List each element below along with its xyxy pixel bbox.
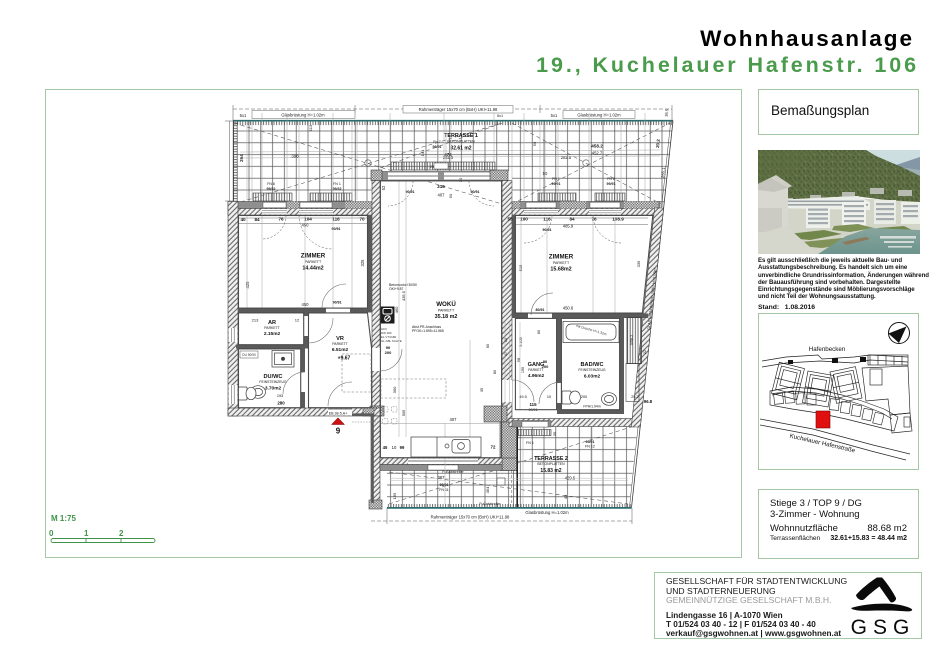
svg-text:100: 100 <box>520 217 528 222</box>
svg-text:70: 70 <box>359 217 365 222</box>
svg-text:9: 9 <box>336 427 341 436</box>
svg-text:PARKETT: PARKETT <box>264 326 279 330</box>
svg-text:25: 25 <box>430 164 435 169</box>
svg-text:10: 10 <box>392 445 397 450</box>
svg-text:99/91: 99/91 <box>607 182 616 186</box>
svg-text:458.2: 458.2 <box>591 144 603 149</box>
svg-text:190: 190 <box>521 367 525 373</box>
svg-text:5x1: 5x1 <box>497 114 503 118</box>
svg-text:3.70m2: 3.70m2 <box>265 386 282 392</box>
svg-text:Rahmenträger 15x70 cm (BxH) UK: Rahmenträger 15x70 cm (BxH) UKI+11.98 <box>431 515 510 520</box>
svg-text:99: 99 <box>400 445 405 450</box>
svg-text:50: 50 <box>543 171 548 176</box>
svg-text:90/91: 90/91 <box>406 190 415 194</box>
svg-text:BET.ONPLATTEN: BET.ONPLATTEN <box>537 462 565 466</box>
svg-text:104: 104 <box>304 217 312 222</box>
svg-text:60: 60 <box>537 330 541 334</box>
svg-text:35.18 m2: 35.18 m2 <box>435 314 458 320</box>
svg-text:50: 50 <box>448 193 453 198</box>
svg-text:200: 200 <box>542 364 549 369</box>
svg-text:452.7: 452.7 <box>592 151 603 156</box>
svg-text:FN 8: FN 8 <box>607 177 615 181</box>
svg-text:113: 113 <box>308 124 313 131</box>
svg-text:10: 10 <box>547 395 551 399</box>
svg-text:43: 43 <box>563 494 568 499</box>
svg-text:49.5: 49.5 <box>519 395 526 399</box>
svg-text:40: 40 <box>240 217 246 222</box>
svg-text:TERRASSE 1: TERRASSE 1 <box>444 133 478 139</box>
svg-text:50: 50 <box>532 141 537 146</box>
svg-text:0/58.2: 0/58.2 <box>630 335 634 346</box>
svg-text:Kuchelauer Hafenstraße: Kuchelauer Hafenstraße <box>789 433 856 455</box>
svg-text:47: 47 <box>504 352 508 356</box>
svg-text:Fußabstreifer: Fußabstreifer <box>442 470 464 474</box>
svg-text:4.96m2: 4.96m2 <box>528 373 545 379</box>
svg-text:99/32: 99/32 <box>333 187 342 191</box>
svg-text:76: 76 <box>278 217 284 222</box>
svg-text:FN 1: FN 1 <box>333 182 341 186</box>
svg-text:Glasbrüstung H=1.02m: Glasbrüstung H=1.02m <box>577 113 621 118</box>
svg-text:90/91: 90/91 <box>333 301 342 305</box>
svg-text:15.83 m2: 15.83 m2 <box>540 468 561 474</box>
svg-text:200: 200 <box>581 395 587 399</box>
svg-text:PFOK=1.895=11.565: PFOK=1.895=11.565 <box>412 329 444 333</box>
svg-text:387: 387 <box>438 475 446 480</box>
svg-text:200: 200 <box>385 350 392 355</box>
svg-text:22: 22 <box>643 350 647 354</box>
svg-text:282.5: 282.5 <box>561 155 572 160</box>
svg-text:6.03m2: 6.03m2 <box>584 374 601 380</box>
svg-text:55: 55 <box>507 217 513 222</box>
svg-text:6.51m2: 6.51m2 <box>332 347 349 353</box>
svg-text:EB 38-5.A+: EB 38-5.A+ <box>329 412 347 416</box>
svg-text:193: 193 <box>277 394 283 398</box>
svg-text:76: 76 <box>591 217 597 222</box>
svg-text:96.8: 96.8 <box>644 399 653 404</box>
svg-text:Hafenbecken: Hafenbecken <box>809 346 846 353</box>
svg-text:99/91: 99/91 <box>586 440 595 444</box>
svg-text:15.68m2: 15.68m2 <box>550 267 571 273</box>
svg-text:325: 325 <box>360 259 365 267</box>
svg-text:144: 144 <box>420 149 425 156</box>
svg-text:FEINSTEINZEUG: FEINSTEINZEUG <box>578 368 605 372</box>
svg-text:5.105: 5.105 <box>519 337 523 347</box>
svg-text:5x1: 5x1 <box>551 113 558 118</box>
svg-text:ZIMMER: ZIMMER <box>301 253 326 260</box>
svg-text:450: 450 <box>302 302 310 307</box>
svg-text:FN 1: FN 1 <box>526 441 534 445</box>
svg-text:PARKETT: PARKETT <box>305 260 322 264</box>
svg-text:425: 425 <box>245 281 250 289</box>
svg-text:165: 165 <box>392 492 397 499</box>
svg-text:45: 45 <box>383 445 388 450</box>
svg-text:OKI+9.87: OKI+9.87 <box>389 287 404 291</box>
svg-text:+9.67: +9.67 <box>338 356 351 362</box>
svg-text:99/91: 99/91 <box>552 182 561 186</box>
svg-text:60: 60 <box>486 344 490 348</box>
svg-text:335: 335 <box>636 260 641 267</box>
svg-text:450.6: 450.6 <box>563 306 574 311</box>
svg-text:FN 1: FN 1 <box>552 177 560 181</box>
svg-text:Fußabstreifer: Fußabstreifer <box>479 502 501 506</box>
svg-text:20.2: 20.2 <box>655 139 661 149</box>
svg-text:485.9: 485.9 <box>563 224 574 229</box>
svg-text:84: 84 <box>569 217 575 222</box>
svg-text:WOKÜ: WOKÜ <box>436 301 456 308</box>
svg-text:Glasbrüstung H=1.02m: Glasbrüstung H=1.02m <box>281 113 325 118</box>
svg-text:99/91: 99/91 <box>440 483 449 487</box>
svg-text:BET.ONPLATTEN: BET.ONPLATTEN <box>447 140 475 144</box>
svg-text:454: 454 <box>485 486 490 493</box>
svg-text:FPH/1.94m: FPH/1.94m <box>583 405 600 409</box>
svg-text:99/91: 99/91 <box>433 145 442 149</box>
svg-text:450: 450 <box>302 223 310 228</box>
svg-text:58: 58 <box>516 357 521 362</box>
svg-text:60: 60 <box>504 338 508 342</box>
svg-text:FEINSTEINZEUG: FEINSTEINZEUG <box>259 380 286 384</box>
svg-text:99/32: 99/32 <box>267 187 276 191</box>
svg-text:116: 116 <box>332 217 340 222</box>
svg-text:80: 80 <box>493 370 497 374</box>
svg-text:FN 8: FN 8 <box>267 182 275 186</box>
svg-text:35: 35 <box>480 388 484 392</box>
svg-text:GL.ABL.SCHTE: GL.ABL.SCHTE <box>381 339 402 343</box>
svg-text:PARKETT: PARKETT <box>438 309 455 313</box>
svg-text:115: 115 <box>529 402 537 407</box>
svg-text:460: 460 <box>394 306 399 313</box>
svg-text:DU 90/90: DU 90/90 <box>242 353 256 357</box>
svg-text:FN 12: FN 12 <box>585 445 595 449</box>
svg-text:Glasbrüstung H=1.02m: Glasbrüstung H=1.02m <box>525 510 569 515</box>
svg-text:12: 12 <box>295 318 300 323</box>
svg-text:300: 300 <box>392 386 397 393</box>
svg-text:80/91: 80/91 <box>536 308 545 312</box>
svg-text:ZIMMER: ZIMMER <box>549 254 574 261</box>
svg-text:435.5: 435.5 <box>401 290 406 301</box>
svg-text:282.5: 282.5 <box>443 155 454 160</box>
svg-text:108.9: 108.9 <box>612 217 624 222</box>
svg-text:2.15m2: 2.15m2 <box>264 331 281 337</box>
svg-text:Ro 7: Ro 7 <box>433 140 441 144</box>
svg-text:407: 407 <box>450 417 458 422</box>
svg-text:PARKETT: PARKETT <box>553 261 570 265</box>
svg-text:GSG: GSG <box>851 616 916 638</box>
svg-text:32.61 m2: 32.61 m2 <box>450 146 471 152</box>
svg-text:316: 316 <box>437 184 445 189</box>
svg-text:52: 52 <box>381 185 386 190</box>
svg-text:515: 515 <box>518 264 523 271</box>
svg-text:407: 407 <box>438 193 446 198</box>
svg-text:509: 509 <box>402 410 406 416</box>
svg-text:Rahmenträger 15x70 cm (BxH) UK: Rahmenträger 15x70 cm (BxH) UKI+11.98 <box>419 107 498 112</box>
svg-text:84: 84 <box>254 217 260 222</box>
svg-text:PARKETT: PARKETT <box>332 342 347 346</box>
svg-text:25.7: 25.7 <box>631 395 638 399</box>
svg-text:280: 280 <box>277 401 285 406</box>
svg-text:36.5: 36.5 <box>664 108 670 117</box>
svg-text:5x1: 5x1 <box>240 113 247 118</box>
svg-text:14.44m2: 14.44m2 <box>302 266 323 272</box>
svg-text:90/91: 90/91 <box>471 190 480 194</box>
svg-text:213: 213 <box>252 318 259 323</box>
svg-text:72: 72 <box>491 445 496 450</box>
svg-text:35: 35 <box>552 431 557 436</box>
svg-text:FN 11: FN 11 <box>439 488 449 492</box>
